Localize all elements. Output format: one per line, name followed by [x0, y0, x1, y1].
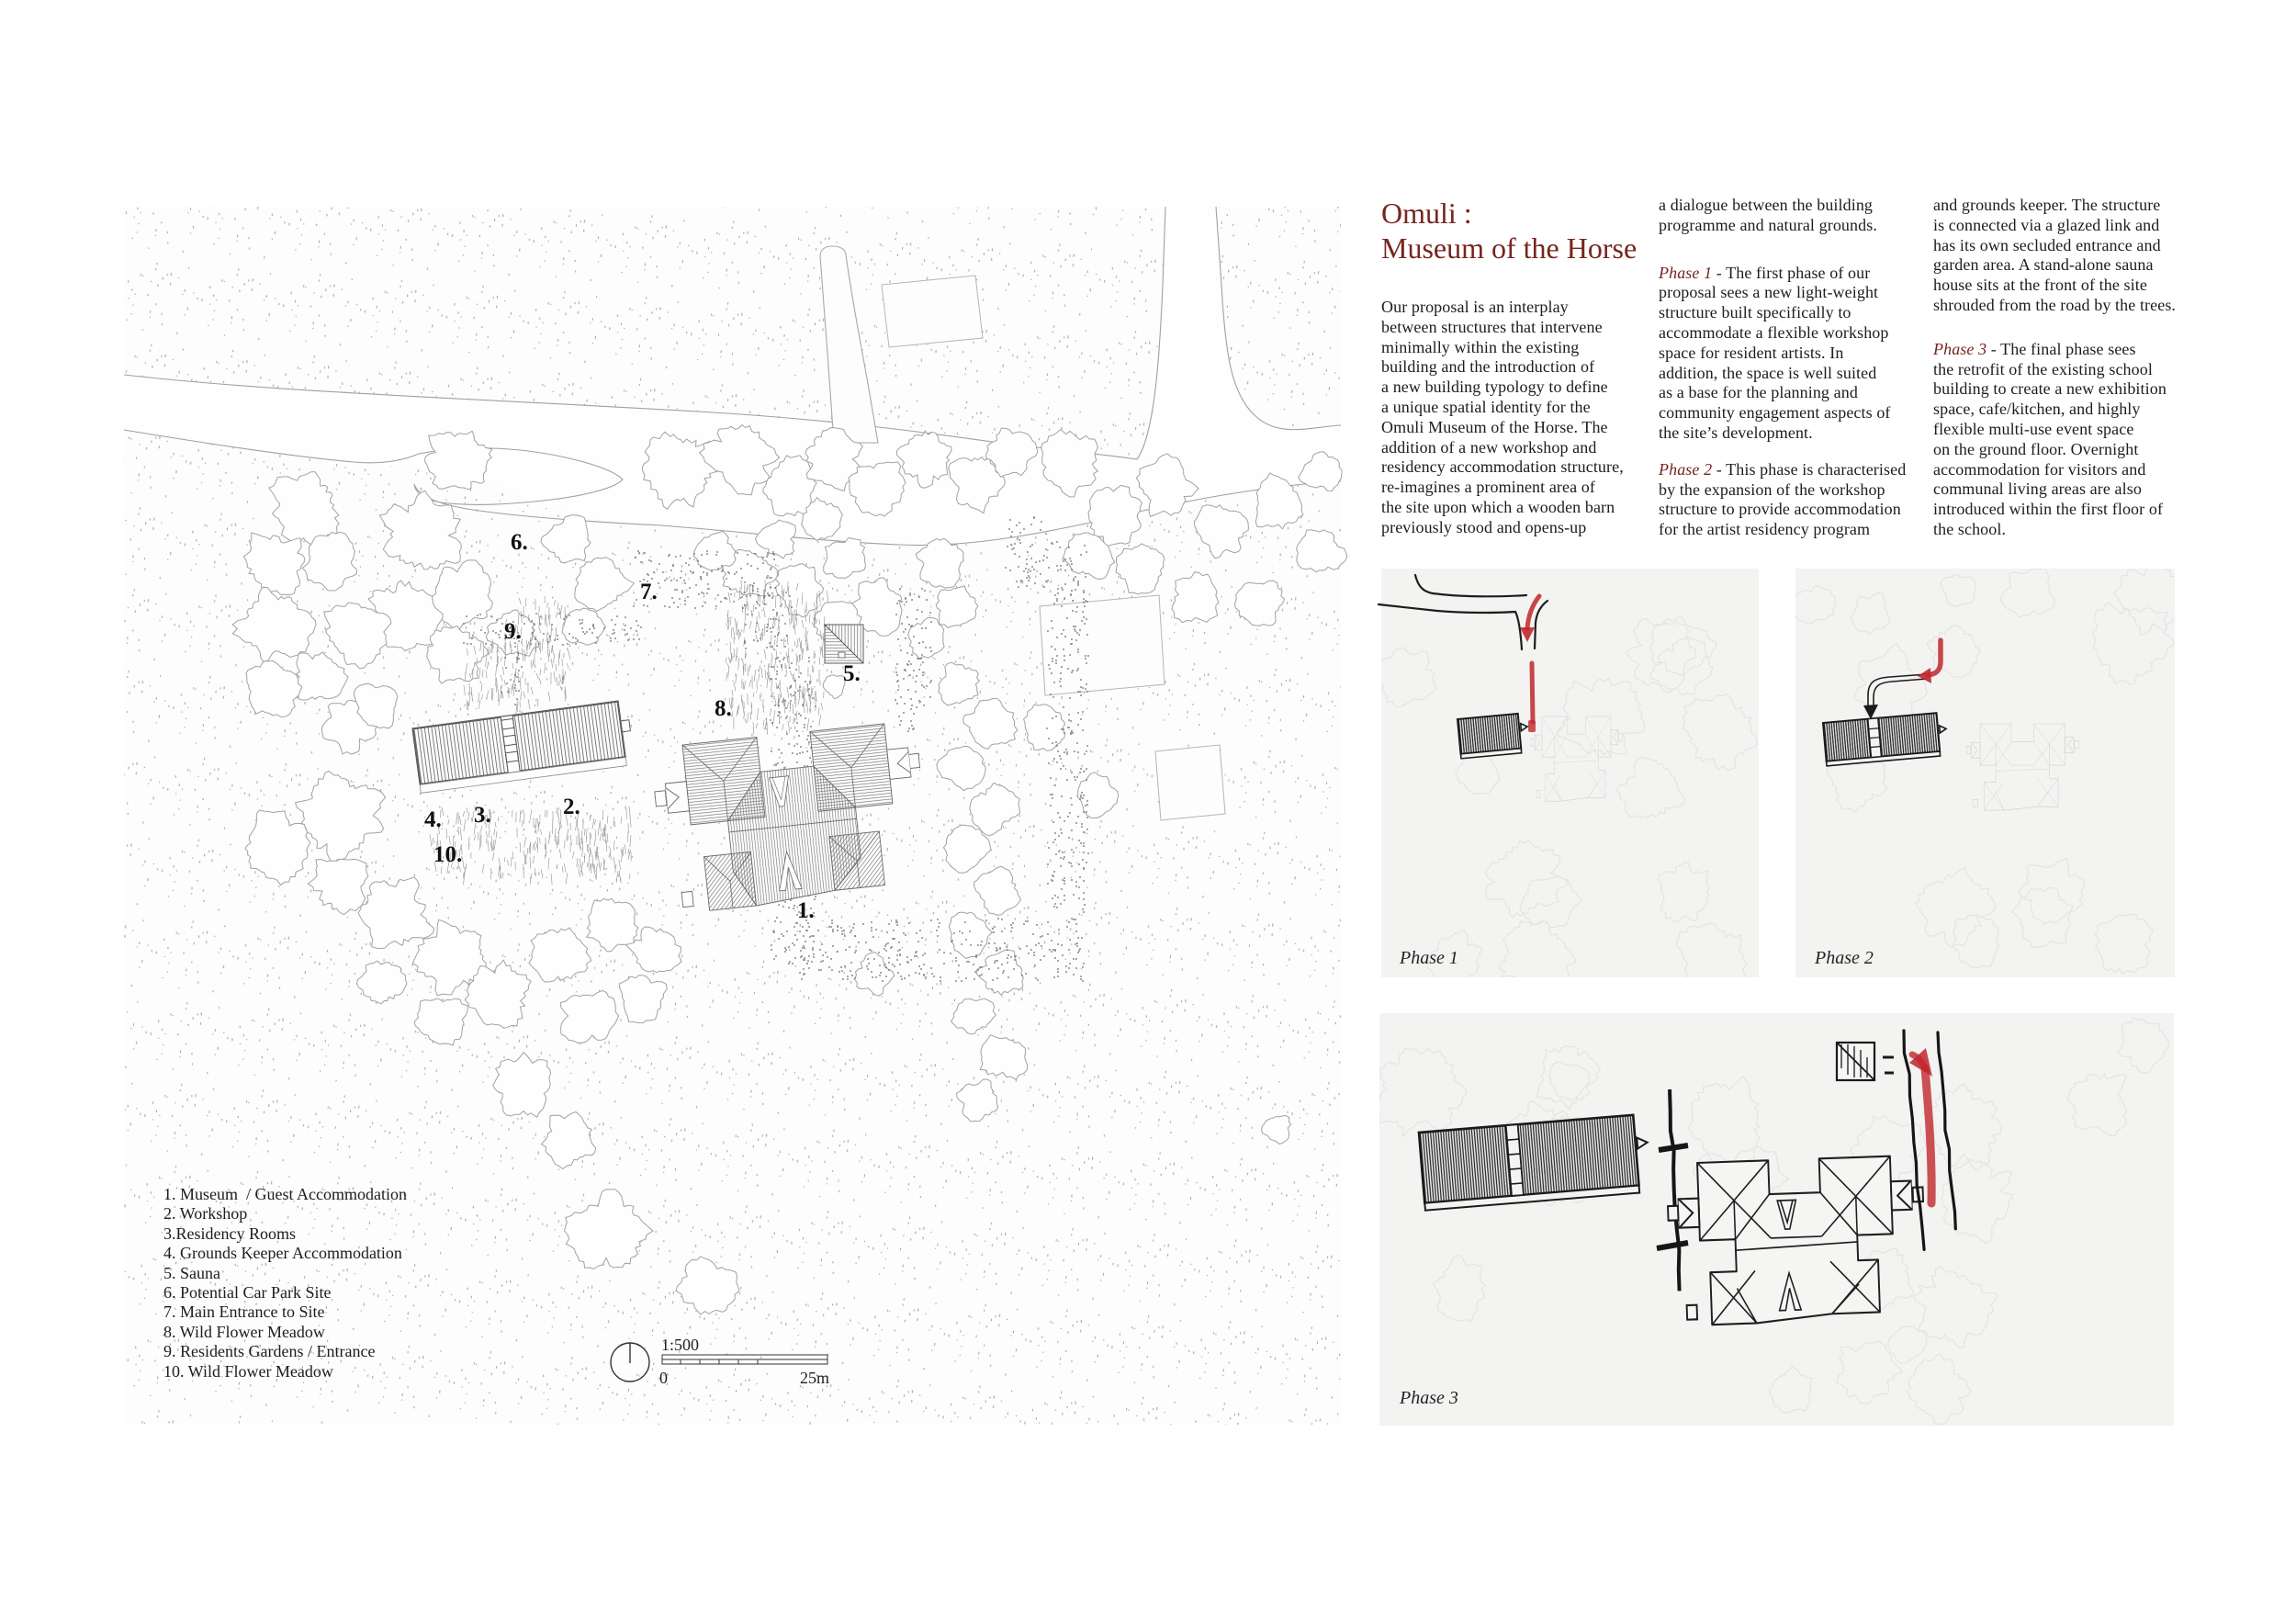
svg-text:9.: 9.	[504, 619, 522, 644]
svg-text:1.: 1.	[797, 898, 815, 923]
svg-text:8.: 8.	[715, 696, 732, 721]
svg-text:2.: 2.	[563, 795, 580, 819]
svg-text:6.: 6.	[511, 530, 528, 555]
svg-text:3.: 3.	[474, 803, 491, 828]
svg-text:Phase 2: Phase 2	[1814, 948, 1874, 968]
svg-text:10.: 10.	[433, 842, 462, 867]
svg-text:7.: 7.	[640, 580, 658, 604]
svg-text:0: 0	[659, 1369, 668, 1387]
svg-text:25m: 25m	[800, 1369, 829, 1387]
svg-text:5.: 5.	[843, 661, 861, 686]
svg-text:1:500: 1:500	[661, 1336, 699, 1354]
svg-text:4.: 4.	[424, 807, 442, 832]
svg-text:Phase 1: Phase 1	[1399, 948, 1458, 968]
svg-text:Phase 3: Phase 3	[1399, 1388, 1458, 1408]
